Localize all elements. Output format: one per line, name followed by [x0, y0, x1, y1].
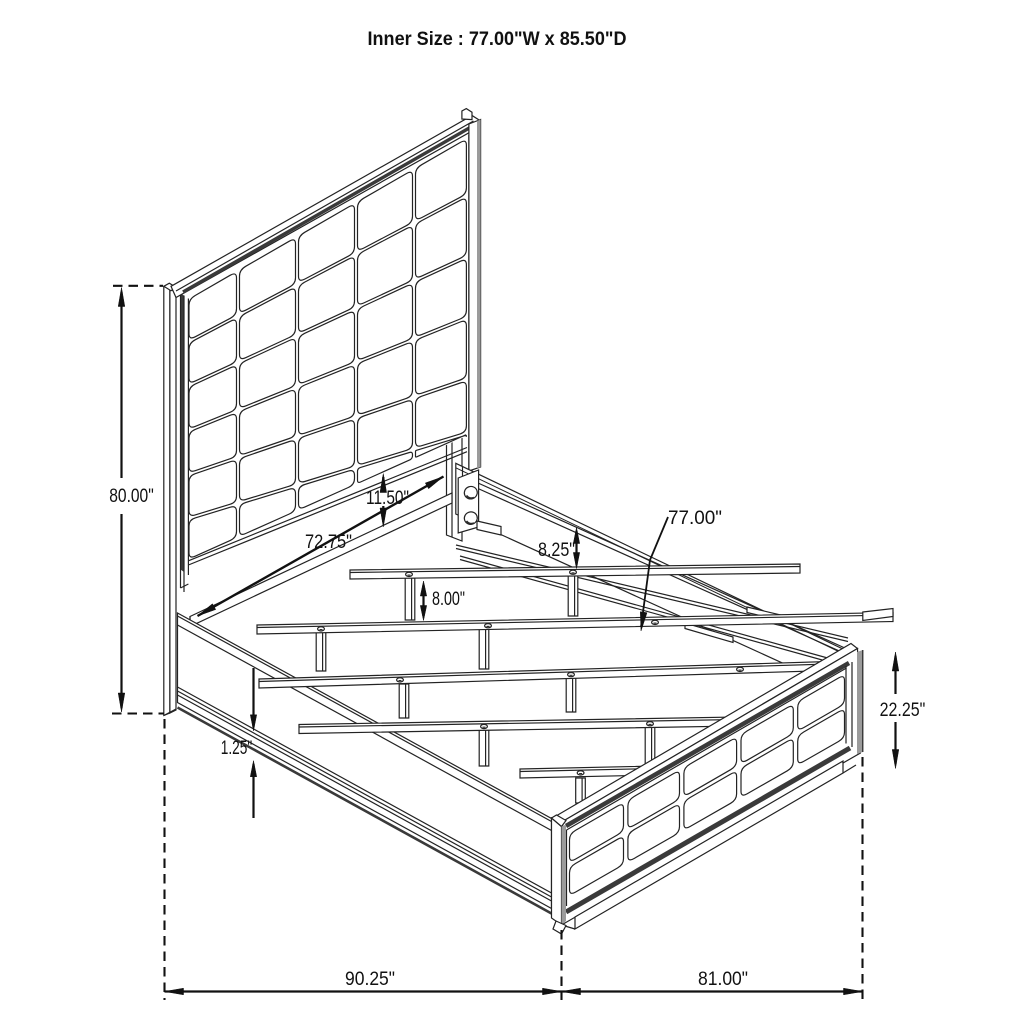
svg-text:8.25": 8.25" [538, 540, 575, 561]
svg-text:8.00": 8.00" [432, 589, 465, 610]
svg-text:80.00": 80.00" [109, 486, 154, 507]
svg-text:90.25": 90.25" [345, 969, 395, 990]
svg-text:1.25": 1.25" [221, 738, 253, 759]
svg-text:77.00": 77.00" [668, 508, 722, 529]
svg-text:22.25": 22.25" [880, 700, 926, 721]
svg-text:81.00": 81.00" [698, 969, 748, 990]
svg-text:Inner Size : 77.00"W x 85.50"D: Inner Size : 77.00"W x 85.50"D [368, 29, 627, 50]
svg-text:72.75": 72.75" [305, 532, 352, 553]
